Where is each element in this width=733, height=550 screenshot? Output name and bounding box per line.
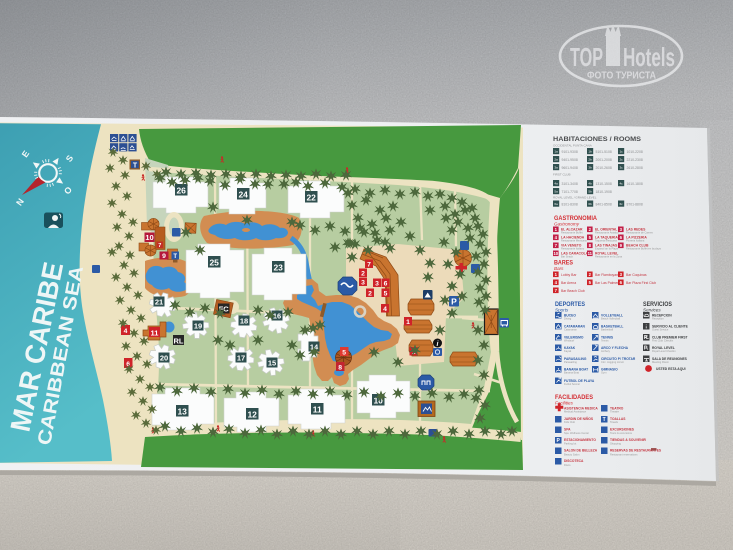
svg-text:8701-8808: 8701-8808 <box>627 202 643 206</box>
svg-text:4c: 4c <box>620 181 624 185</box>
svg-text:4b: 4b <box>588 181 592 185</box>
svg-text:7: 7 <box>158 243 161 249</box>
svg-text:FUTBOL DE PLAYA: FUTBOL DE PLAYA <box>564 379 595 383</box>
svg-text:2b: 2b <box>588 157 592 161</box>
svg-text:BUCEO: BUCEO <box>564 314 576 318</box>
svg-text:OCCIDENTAL PUNTA CANA: OCCIDENTAL PUNTA CANA <box>553 144 592 148</box>
svg-text:Bars: Bars <box>554 266 564 271</box>
svg-text:4: 4 <box>383 306 387 313</box>
svg-text:2610-2808: 2610-2808 <box>627 166 643 170</box>
svg-text:19: 19 <box>194 322 202 331</box>
svg-text:VOLLEYBALL: VOLLEYBALL <box>601 314 623 318</box>
svg-text:SERVICIO AL CLIENTE: SERVICIO AL CLIENTE <box>652 325 689 329</box>
svg-text:Bar Beach Club: Bar Beach Club <box>561 289 585 293</box>
svg-text:6: 6 <box>384 281 388 288</box>
svg-text:Bar Flamboyan: Bar Flamboyan <box>595 273 618 277</box>
svg-text:RL: RL <box>174 337 184 346</box>
svg-text:DISCOTECA: DISCOTECA <box>564 459 584 463</box>
svg-text:ROYAL LEVEL: ROYAL LEVEL <box>595 252 618 256</box>
svg-text:FIRST CLUB: FIRST CLUB <box>553 173 570 177</box>
svg-text:3b: 3b <box>588 165 592 169</box>
svg-text:9601-9408: 9601-9408 <box>562 166 578 170</box>
svg-text:23: 23 <box>273 263 283 273</box>
svg-text:13: 13 <box>177 407 187 417</box>
svg-text:11: 11 <box>588 251 593 256</box>
svg-text:ARCO Y FLECHA: ARCO Y FLECHA <box>601 346 629 350</box>
svg-text:1: 1 <box>406 319 410 326</box>
svg-text:8401-8508: 8401-8508 <box>596 202 612 206</box>
svg-text:P: P <box>451 297 457 307</box>
svg-text:EXCURSIONES: EXCURSIONES <box>610 428 635 432</box>
svg-text:SPA: SPA <box>564 428 571 432</box>
svg-text:Facilities: Facilities <box>555 401 574 406</box>
svg-text:10: 10 <box>553 251 558 256</box>
svg-text:ROYAL LEVEL / GRAND LEVEL: ROYAL LEVEL / GRAND LEVEL <box>553 196 597 200</box>
svg-text:22: 22 <box>306 193 316 203</box>
svg-text:VIA VENETO: VIA VENETO <box>561 244 582 248</box>
svg-text:3: 3 <box>361 280 365 287</box>
svg-text:1810-1908: 1810-1908 <box>596 190 612 194</box>
svg-text:3a: 3a <box>554 165 558 169</box>
svg-text:USTED ESTA AQUI: USTED ESTA AQUI <box>656 367 686 371</box>
svg-text:9: 9 <box>162 253 166 260</box>
svg-text:25: 25 <box>209 258 219 268</box>
svg-text:1c: 1c <box>620 149 624 153</box>
svg-text:17: 17 <box>237 354 245 363</box>
svg-text:HABITACIONES / ROOMS: HABITACIONES / ROOMS <box>553 136 642 143</box>
svg-text:ASISTENCIA MEDICA: ASISTENCIA MEDICA <box>564 407 598 411</box>
svg-text:11: 11 <box>313 405 322 415</box>
svg-text:CLUB PREMIER FIRST: CLUB PREMIER FIRST <box>652 336 688 340</box>
svg-text:TENNIS: TENNIS <box>601 336 614 340</box>
svg-text:2: 2 <box>368 291 372 298</box>
svg-text:5: 5 <box>342 349 346 356</box>
svg-text:3c: 3c <box>620 165 624 169</box>
svg-text:Bar Plaza First Club: Bar Plaza First Club <box>626 281 656 285</box>
svg-text:5: 5 <box>384 291 388 298</box>
svg-text:ROYAL LEVEL: ROYAL LEVEL <box>652 346 675 350</box>
svg-text:24: 24 <box>238 190 248 200</box>
svg-text:9101-9308: 9101-9308 <box>562 150 578 154</box>
svg-text:2: 2 <box>361 271 365 278</box>
svg-text:Spa. Wellness Center: Spa. Wellness Center <box>564 431 589 435</box>
svg-text:1310-1508: 1310-1508 <box>596 182 612 186</box>
svg-text:CATAMARAN: CATAMARAN <box>564 325 586 329</box>
svg-text:2c: 2c <box>620 157 624 161</box>
svg-text:6a: 6a <box>554 202 558 206</box>
svg-text:Services: Services <box>643 308 661 313</box>
svg-text:Gastronomy: Gastronomy <box>554 222 580 227</box>
svg-text:2010-2608: 2010-2608 <box>596 166 612 170</box>
svg-text:LA PIZZERIA: LA PIZZERIA <box>626 236 647 240</box>
svg-text:11: 11 <box>151 329 159 338</box>
svg-text:VELERISMO: VELERISMO <box>564 336 584 340</box>
svg-text:T: T <box>133 163 138 170</box>
svg-text:2a: 2a <box>554 157 558 161</box>
svg-text:7101-7708: 7101-7708 <box>562 190 578 194</box>
svg-text:20: 20 <box>160 354 168 363</box>
svg-text:21: 21 <box>155 298 163 307</box>
svg-text:TIENDAS & SOUVENIR: TIENDAS & SOUVENIR <box>610 438 647 442</box>
svg-text:2001-2008: 2001-2008 <box>596 158 612 162</box>
svg-text:TOALLAS: TOALLAS <box>610 417 626 421</box>
svg-text:Beauty Salon: Beauty Salon <box>564 453 580 457</box>
svg-text:12: 12 <box>247 410 257 420</box>
svg-text:26: 26 <box>176 186 186 196</box>
svg-text:PARASAILING: PARASAILING <box>564 357 587 361</box>
svg-text:KAYAK: KAYAK <box>564 346 576 350</box>
svg-text:Bar Coquinas: Bar Coquinas <box>626 273 647 277</box>
svg-text:SALON DE BELLEZA: SALON DE BELLEZA <box>564 449 598 453</box>
svg-text:9401-9508: 9401-9508 <box>562 158 578 162</box>
svg-text:5a: 5a <box>554 189 558 193</box>
svg-text:EL ALCAZAR: EL ALCAZAR <box>561 228 583 232</box>
svg-text:T: T <box>173 254 177 260</box>
svg-text:ESTACIONAMIENTO: ESTACIONAMIENTO <box>564 438 596 442</box>
svg-text:8: 8 <box>338 364 342 371</box>
svg-text:1610-1808: 1610-1808 <box>627 182 643 186</box>
svg-text:LAS TINAJAS: LAS TINAJAS <box>595 244 618 248</box>
svg-text:10: 10 <box>145 233 153 242</box>
svg-text:SALA DE REUNIONES: SALA DE REUNIONES <box>652 357 688 361</box>
svg-text:5b: 5b <box>588 189 592 193</box>
svg-text:Restaurant reservations: Restaurant reservations <box>610 453 638 457</box>
svg-text:Sports: Sports <box>555 308 569 313</box>
svg-text:1010-2208: 1010-2208 <box>627 150 643 154</box>
svg-text:Parking lot: Parking lot <box>564 442 577 446</box>
svg-text:1a: 1a <box>554 149 558 153</box>
svg-text:TEATRO: TEATRO <box>610 407 624 411</box>
svg-text:2210-2308: 2210-2308 <box>627 158 643 162</box>
svg-text:Disco: Disco <box>564 463 571 467</box>
svg-text:7: 7 <box>367 262 371 269</box>
svg-text:ФОТО ТУРИСТА: ФОТО ТУРИСТА <box>587 70 656 82</box>
svg-text:6b: 6b <box>588 202 592 206</box>
svg-text:Tours & excursions: Tours & excursions <box>610 431 633 435</box>
svg-text:JARDIN DE NIÑOS: JARDIN DE NIÑOS <box>564 416 594 421</box>
svg-text:CIRCUITO P/ TROTAR: CIRCUITO P/ TROTAR <box>601 357 636 361</box>
svg-text:3101-3408: 3101-3408 <box>562 182 578 186</box>
svg-text:Shopping: Shopping <box>610 442 622 446</box>
svg-text:1b: 1b <box>588 149 592 153</box>
svg-text:LAS REDES: LAS REDES <box>626 228 646 232</box>
svg-text:15: 15 <box>268 359 276 368</box>
svg-text:Hotels: Hotels <box>623 42 675 72</box>
svg-text:6c: 6c <box>620 202 624 206</box>
svg-text:8101-8308: 8101-8308 <box>562 202 578 206</box>
svg-text:Lobby Bar: Lobby Bar <box>561 273 577 277</box>
svg-text:18: 18 <box>240 317 248 326</box>
svg-text:5101-5108: 5101-5108 <box>596 150 612 154</box>
svg-text:4a: 4a <box>554 181 558 185</box>
svg-text:BEACH CLUB: BEACH CLUB <box>626 244 649 248</box>
svg-text:LA HACIENDA: LA HACIENDA <box>561 236 585 240</box>
svg-text:RECEPCION: RECEPCION <box>652 314 672 318</box>
svg-text:EL ORIENTAL: EL ORIENTAL <box>595 228 617 232</box>
svg-text:TOP: TOP <box>570 42 603 72</box>
svg-text:Bar Arena: Bar Arena <box>561 281 576 285</box>
svg-text:BANANA BOAT: BANANA BOAT <box>564 368 588 372</box>
svg-text:BASKETBALL: BASKETBALL <box>601 325 623 329</box>
svg-text:4: 4 <box>124 328 128 335</box>
svg-text:T: T <box>603 417 606 423</box>
svg-text:GIMNASIO: GIMNASIO <box>601 368 618 372</box>
svg-text:LA TAQUERIA: LA TAQUERIA <box>595 236 618 240</box>
svg-text:3: 3 <box>375 281 379 288</box>
